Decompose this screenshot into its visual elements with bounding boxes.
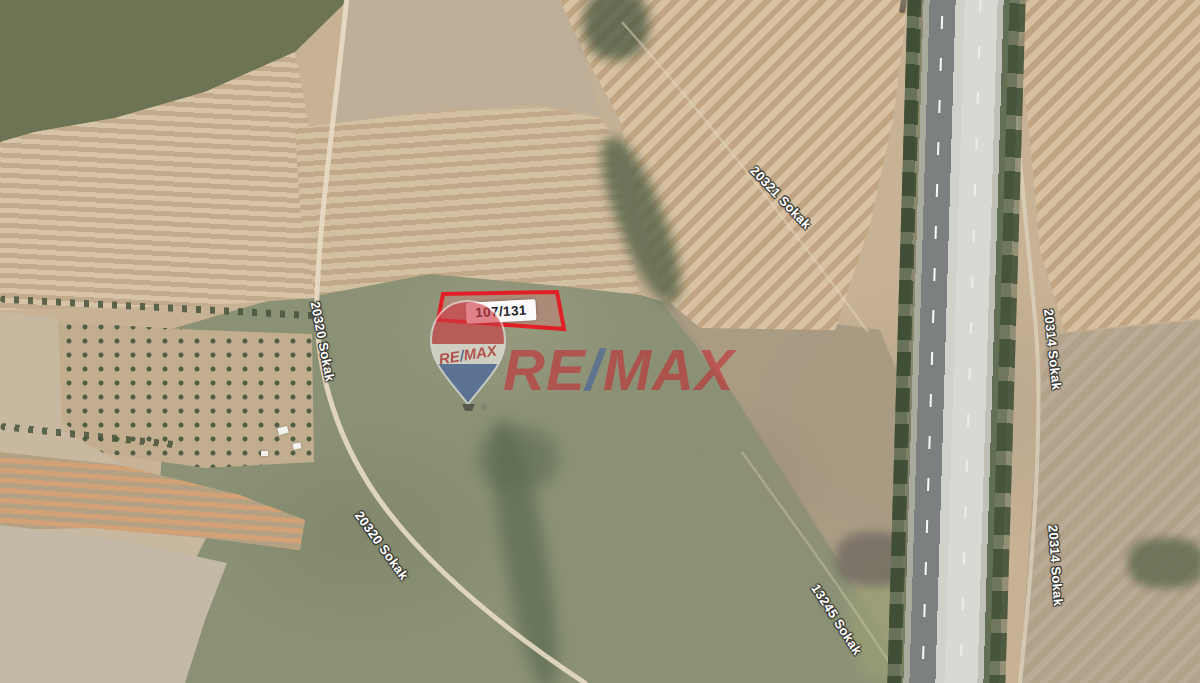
remax-balloon-logo: RE/MAX ® — [422, 298, 514, 412]
balloon-basket — [462, 404, 475, 411]
watermark-re: RE — [503, 337, 586, 402]
watermark-slash: / — [586, 337, 603, 402]
remax-watermark: RE/MAX — [503, 336, 735, 403]
registered-mark: ® — [481, 403, 487, 412]
satellite-map: 107/131 RE/MAX ® RE/MAX 20321 Sokak 2032… — [0, 0, 1200, 683]
watermark-max: MAX — [603, 337, 735, 402]
